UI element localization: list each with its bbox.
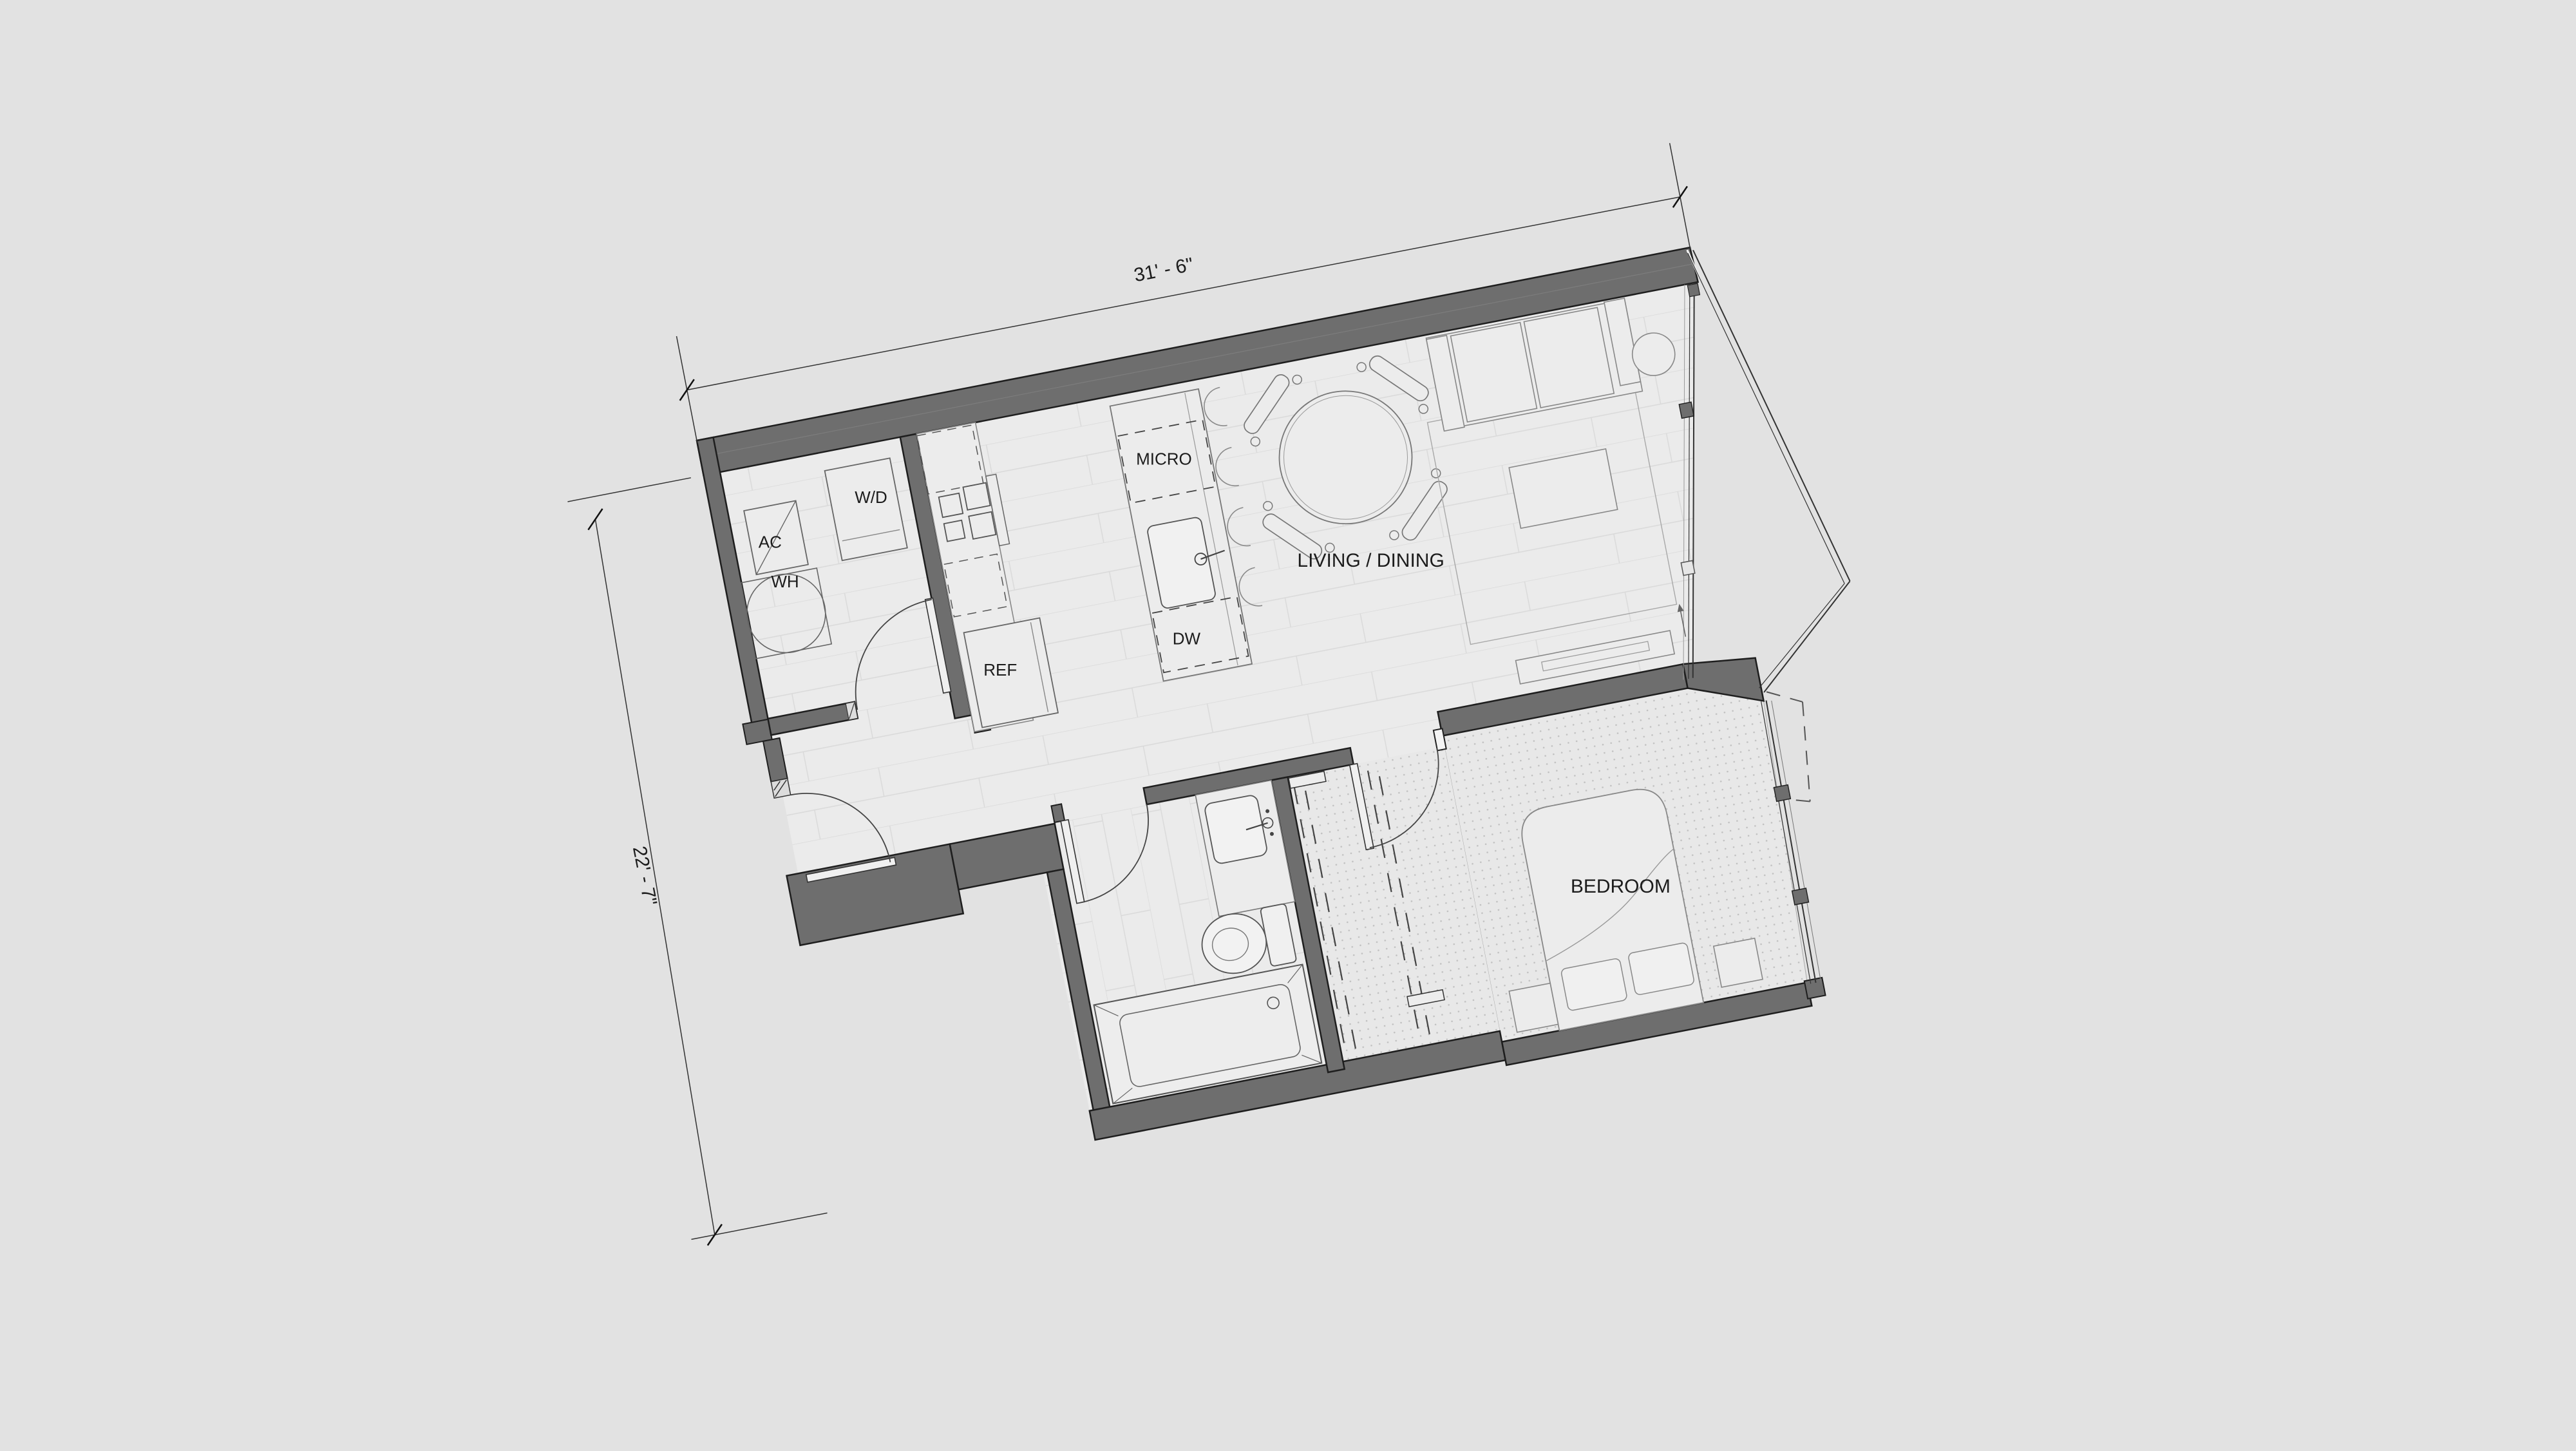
svg-text:WH: WH (771, 572, 799, 591)
svg-text:AC: AC (759, 532, 782, 551)
svg-text:BEDROOM: BEDROOM (1571, 876, 1671, 897)
svg-text:DW: DW (1173, 629, 1201, 649)
svg-text:W/D: W/D (855, 488, 887, 507)
svg-text:LIVING / DINING: LIVING / DINING (1297, 550, 1444, 571)
svg-text:MICRO: MICRO (1136, 449, 1192, 468)
svg-text:REF: REF (983, 660, 1017, 679)
